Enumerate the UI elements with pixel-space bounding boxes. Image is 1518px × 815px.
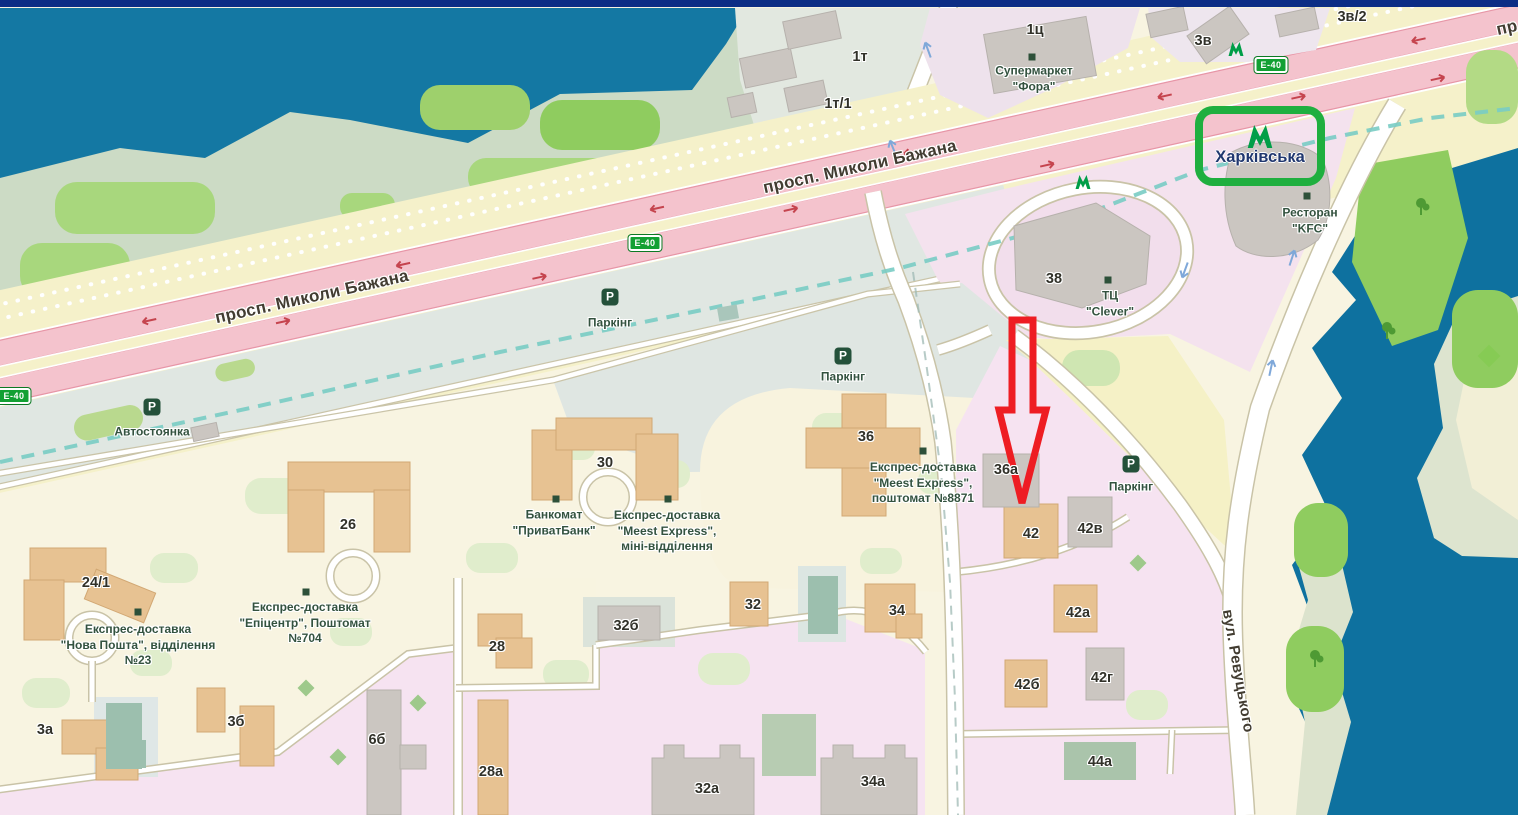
poi-epicentr-line2: "Епіцентр", Поштомат [239, 615, 370, 631]
building-label-32b: 32б [613, 618, 638, 634]
poi-marker-meest-mini [665, 496, 672, 503]
poi-clever-line1: ТЦ [1086, 289, 1134, 305]
route-e40-sign-left: E-40 [0, 388, 31, 404]
metro-entrance-icon-1 [1075, 175, 1091, 189]
building-label-26: 26 [340, 517, 356, 533]
building-label-1t1: 1т/1 [824, 96, 851, 112]
building-label-42a: 42а [1066, 605, 1090, 621]
building-label-38: 38 [1046, 271, 1062, 287]
poi-marker-epicentr [303, 589, 310, 596]
poi-meest-post-line2: "Meest Express", [870, 475, 976, 491]
parking-icon-3: P [1123, 456, 1140, 473]
metro-logo-icon [1247, 125, 1273, 148]
building-label-1t: 1т [852, 49, 867, 65]
building-label-42b: 42б [1014, 677, 1039, 693]
building-label-30: 30 [597, 455, 613, 471]
poi-label-privatbank: Банкомат "ПриватБанк" [512, 508, 595, 539]
poi-privat-line1: Банкомат [512, 508, 595, 524]
building-label-42: 42 [1023, 526, 1039, 542]
poi-kfc-line1: Ресторан [1282, 206, 1337, 222]
metro-station-highlight-box: Харківська [1195, 106, 1325, 186]
poi-nova-line3: №23 [61, 653, 216, 669]
poi-clever-line2: "Clever" [1086, 304, 1134, 320]
poi-fora-line1: Супермаркет [995, 64, 1073, 80]
building-label-241: 24/1 [82, 575, 110, 591]
poi-nova-line2: "Нова Пошта", відділення [61, 637, 216, 653]
parking-icon-2: P [835, 348, 852, 365]
poi-label-epicentr: Експрес-доставка "Епіцентр", Поштомат №7… [239, 600, 370, 647]
poi-marker-kfc [1304, 193, 1311, 200]
building-label-3v2: 3в/2 [1337, 9, 1366, 25]
poi-label-kfc: Ресторан "KFC" [1282, 206, 1337, 237]
building-label-28a: 28а [479, 764, 503, 780]
poi-label-meest-postomat: Експрес-доставка "Meest Express", поштом… [870, 460, 976, 507]
avtostoyanka-label: Автостоянка [114, 424, 189, 440]
parking-icon-avtostoyanka: P [144, 399, 161, 416]
building-label-36a: 36а [994, 462, 1018, 478]
building-label-44a: 44а [1088, 754, 1112, 770]
street-label-bazhana-clipped: пр [1494, 16, 1518, 40]
building-label-34: 34 [889, 603, 905, 619]
building-label-34a: 34а [861, 774, 885, 790]
poi-meest-mini-line1: Експрес-доставка [614, 508, 720, 524]
top-edge-bar [0, 0, 1518, 7]
poi-epicentr-line3: №704 [239, 631, 370, 647]
building-label-3v: 3в [1195, 33, 1212, 49]
parking-label-2: Паркінг [821, 369, 865, 385]
route-e40-sign-right: E-40 [1254, 57, 1287, 73]
poi-nova-line1: Експрес-доставка [61, 622, 216, 638]
poi-marker-meest-postomat [920, 448, 927, 455]
poi-marker-fora [1029, 54, 1036, 61]
poi-label-nova-poshta: Експрес-доставка "Нова Пошта", відділенн… [61, 622, 216, 669]
parking-label-3: Паркінг [1109, 479, 1153, 495]
metro-station-name: Харківська [1215, 148, 1305, 167]
poi-label-fora: Супермаркет "Фора" [995, 64, 1073, 95]
poi-label-meest-mini: Експрес-доставка "Meest Express", міні-в… [614, 508, 720, 555]
poi-kfc-line2: "KFC" [1282, 221, 1337, 237]
building-label-32a: 32а [695, 781, 719, 797]
building-label-3b: 3б [227, 714, 244, 730]
poi-fora-line2: "Фора" [995, 79, 1073, 95]
poi-meest-mini-line3: міні-відділення [614, 539, 720, 555]
building-label-32: 32 [745, 597, 761, 613]
parking-icon-1: P [602, 289, 619, 306]
building-label-6b: 6б [368, 732, 385, 748]
building-label-3a: 3а [37, 722, 53, 738]
poi-marker-nova-poshta [135, 609, 142, 616]
building-label-1c: 1ц [1027, 22, 1044, 38]
map-viewport[interactable]: просп. Миколи Бажана просп. Миколи Бажан… [0, 0, 1518, 815]
parking-label-1: Паркінг [588, 315, 632, 331]
poi-meest-post-line1: Експрес-доставка [870, 460, 976, 476]
building-label-36: 36 [858, 429, 874, 445]
poi-marker-privatbank [553, 496, 560, 503]
route-e40-sign-mid: E-40 [628, 235, 661, 251]
poi-epicentr-line1: Експрес-доставка [239, 600, 370, 616]
metro-entrance-icon-2 [1228, 42, 1244, 56]
building-label-28: 28 [489, 639, 505, 655]
poi-marker-clever [1105, 277, 1112, 284]
poi-meest-post-line3: поштомат №8871 [870, 491, 976, 507]
poi-label-clever: ТЦ "Clever" [1086, 289, 1134, 320]
building-label-42g: 42г [1091, 670, 1113, 686]
poi-meest-mini-line2: "Meest Express", [614, 523, 720, 539]
poi-privat-line2: "ПриватБанк" [512, 523, 595, 539]
building-label-42v: 42в [1077, 521, 1102, 537]
